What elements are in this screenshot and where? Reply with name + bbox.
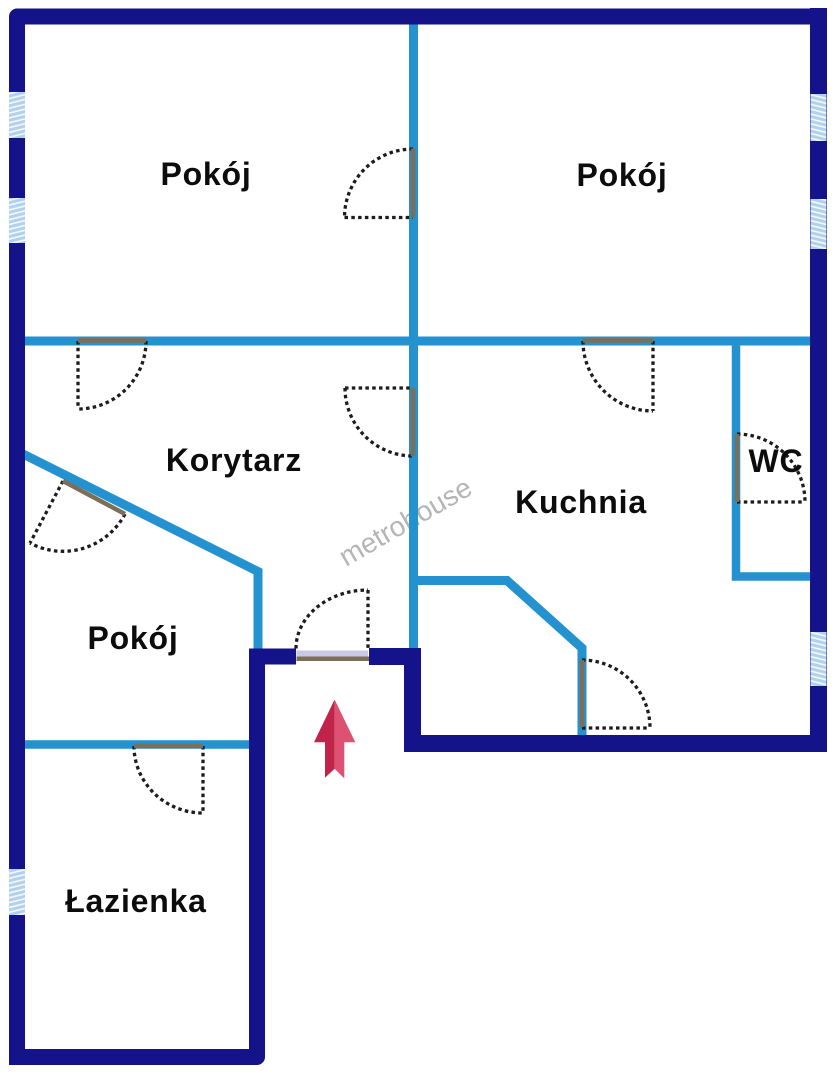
svg-text:Korytarz: Korytarz	[166, 442, 302, 478]
svg-text:Pokój: Pokój	[576, 157, 667, 193]
svg-text:WC: WC	[749, 443, 804, 479]
svg-text:Pokój: Pokój	[160, 156, 251, 192]
svg-text:Kuchnia: Kuchnia	[515, 484, 647, 520]
svg-text:Łazienka: Łazienka	[65, 883, 207, 919]
svg-text:Pokój: Pokój	[87, 620, 178, 656]
